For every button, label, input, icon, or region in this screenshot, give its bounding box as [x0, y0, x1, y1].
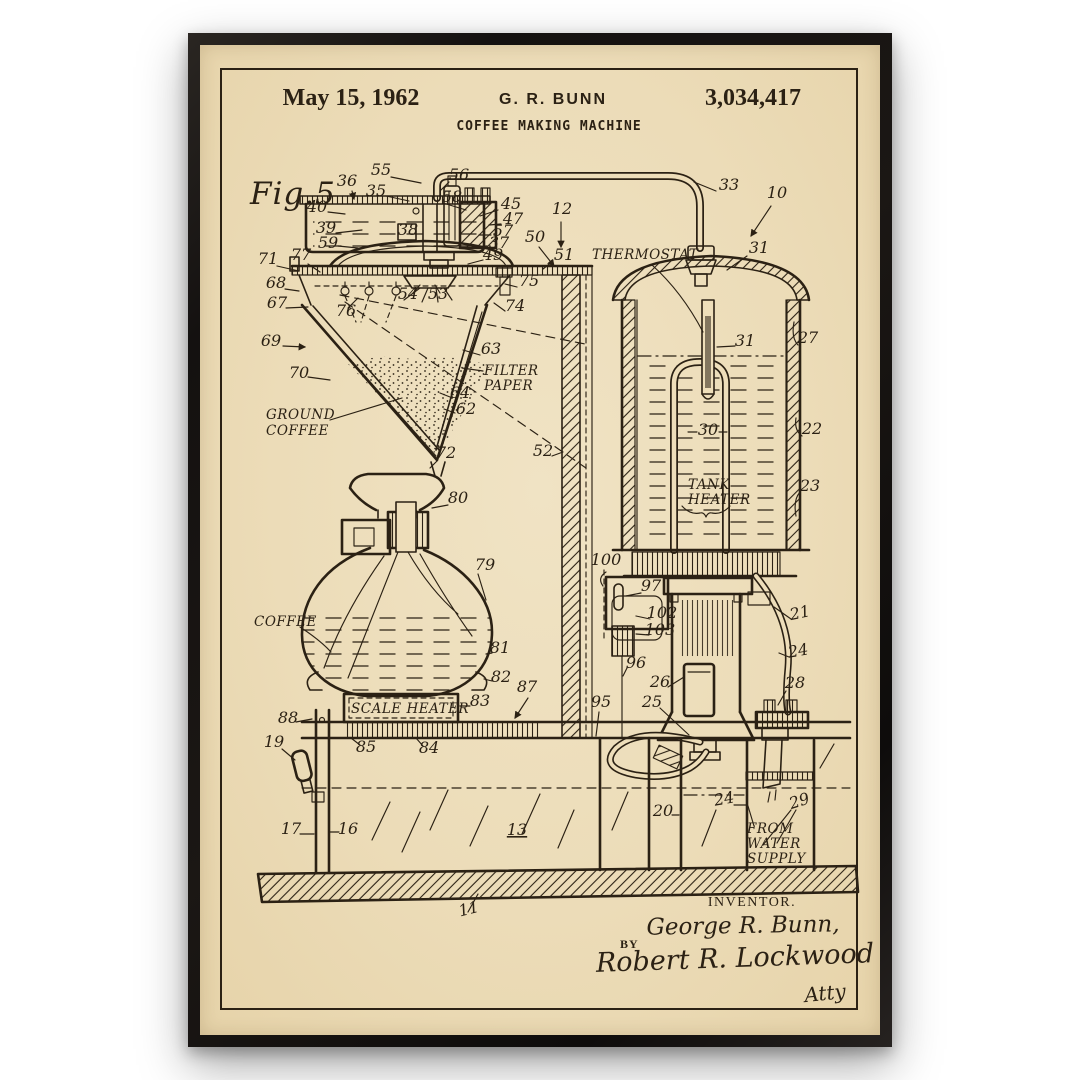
part-number-74: 74 [505, 296, 525, 315]
part-number-24: 24 [711, 787, 735, 809]
part-number-67: 67 [267, 293, 288, 312]
part-number-95: 95 [591, 692, 611, 711]
part-number-29: 29 [786, 789, 812, 814]
part-number-88: 88 [278, 708, 298, 727]
part-number-59: 59 [318, 233, 338, 252]
part-number-100: 100 [591, 550, 622, 569]
part-number-16: 16 [338, 819, 358, 838]
part-number-27: 27 [797, 328, 819, 347]
part-number-30: 30 [698, 420, 718, 439]
part-number-24: 24 [785, 639, 809, 661]
hot-water-tank [613, 256, 809, 576]
part-number-56: 56 [449, 165, 469, 184]
part-number-11: 11 [456, 897, 480, 920]
part-number-69: 69 [261, 331, 281, 350]
part-number-12: 12 [552, 199, 572, 218]
part-number-68: 68 [266, 273, 286, 292]
part-number-21: 21 [787, 601, 812, 624]
annotation-filter-paper: PAPER [483, 378, 533, 394]
part-number-55: 55 [371, 160, 391, 179]
part-number-23: 23 [799, 476, 820, 495]
part-number-77: 77 [291, 245, 312, 264]
part-number-10: 10 [767, 183, 787, 202]
part-number-75: 75 [519, 271, 539, 290]
patent-paper: May 15, 1962 G. R. BUNN 3,034,417 COFFEE… [200, 45, 880, 1035]
part-number-51: 51 [554, 245, 574, 264]
annotation-scale-heater: SCALE HEATER [351, 701, 469, 717]
part-number-63: 63 [481, 339, 501, 358]
part-number-82: 82 [491, 667, 511, 686]
inventor-heading: INVENTOR. [682, 895, 822, 911]
part-number-38: 38 [398, 220, 418, 239]
part-number-17: 17 [281, 819, 302, 838]
annotation-tank-heater: TANK [688, 477, 730, 493]
part-number-81: 81 [490, 638, 510, 657]
part-number-50: 50 [525, 227, 545, 246]
annotation-from-water-supply: WATER [747, 836, 801, 852]
part-number-62: 62 [456, 399, 476, 418]
part-number-96: 96 [626, 653, 646, 672]
part-number-52: 52 [533, 441, 553, 460]
part-number-79: 79 [475, 555, 495, 574]
part-number-28: 28 [784, 673, 805, 692]
part-number-103: 103 [645, 620, 676, 639]
part-number-97: 97 [641, 576, 662, 595]
part-number-80: 80 [448, 488, 468, 507]
part-number-87: 87 [517, 677, 538, 696]
annotation-filter-paper: FILTER [483, 363, 539, 379]
annotation-coffee: COFFEE [254, 614, 317, 630]
annotation-ground-coffee: GROUND [266, 407, 335, 423]
poster-frame: May 15, 1962 G. R. BUNN 3,034,417 COFFEE… [188, 33, 892, 1047]
part-number-13: 13 [507, 820, 527, 839]
part-number-71: 71 [258, 249, 278, 268]
part-number-25: 25 [641, 692, 662, 711]
part-number-84: 84 [419, 738, 439, 757]
page: { "colors":{"paper":"#ecdcb8","ink":"#2b… [0, 0, 1080, 1080]
carafe [300, 474, 494, 698]
patent-drawing: 3655355658403959384547573712505149331031… [200, 45, 880, 1035]
annotation-ground-coffee: COFFEE [266, 423, 329, 439]
part-number-83: 83 [470, 691, 490, 710]
part-number-53: 53 [428, 284, 448, 303]
part-number-70: 70 [289, 363, 309, 382]
part-number-72: 72 [436, 443, 456, 462]
part-number-49: 49 [482, 245, 503, 264]
part-number-76: 76 [336, 301, 356, 320]
part-number-26: 26 [649, 672, 670, 691]
annotation-figure: Fig.5 [249, 176, 336, 212]
part-number-31: 31 [735, 331, 755, 350]
part-number-31: 31 [749, 238, 769, 257]
annotation-tank-heater: HEATER [687, 492, 751, 508]
part-number-22: 22 [801, 419, 822, 438]
annotation-thermostat: THERMOSTAT [592, 247, 699, 263]
part-number-35: 35 [366, 181, 386, 200]
part-number-20: 20 [652, 801, 673, 820]
annotation-from-water-supply: SUPPLY [747, 851, 806, 867]
support-panel [562, 266, 592, 738]
annotation-from-water-supply: FROM [746, 821, 794, 837]
part-number-36: 36 [337, 171, 357, 190]
part-number-19: 19 [264, 732, 284, 751]
part-number-54: 54 [398, 284, 418, 303]
part-number-58: 58 [442, 187, 462, 206]
part-number-33: 33 [719, 175, 739, 194]
part-number-85: 85 [356, 737, 376, 756]
